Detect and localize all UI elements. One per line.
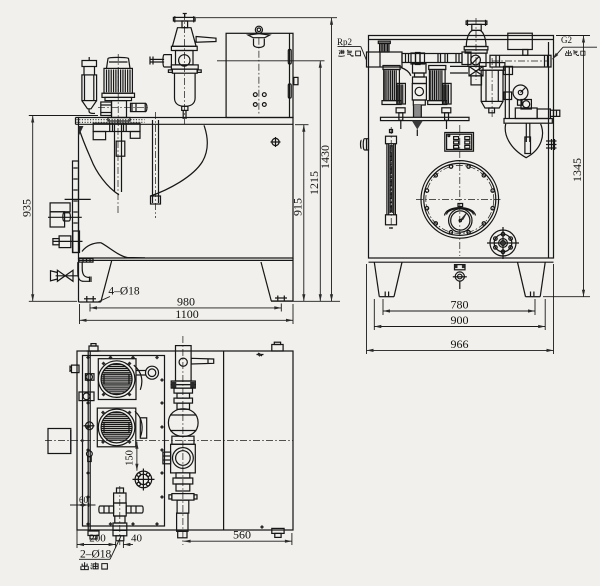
svg-text:40: 40 [131,533,143,545]
svg-text:780: 780 [451,298,469,312]
svg-text:1215: 1215 [307,171,321,195]
svg-text:4–Ø18: 4–Ø18 [108,286,140,298]
svg-text:935: 935 [19,199,33,217]
svg-text:60: 60 [79,495,89,505]
svg-text:900: 900 [451,313,469,327]
svg-text:915: 915 [291,198,305,216]
svg-text:150: 150 [125,450,136,466]
svg-text:200: 200 [89,533,106,545]
svg-text:Rp2: Rp2 [337,37,352,47]
svg-text:560: 560 [233,528,251,542]
svg-text:966: 966 [451,337,469,351]
svg-text:1100: 1100 [175,307,199,321]
svg-text:G2: G2 [561,35,572,45]
svg-text:1345: 1345 [570,158,584,182]
svg-text:2–Ø18: 2–Ø18 [80,549,112,561]
